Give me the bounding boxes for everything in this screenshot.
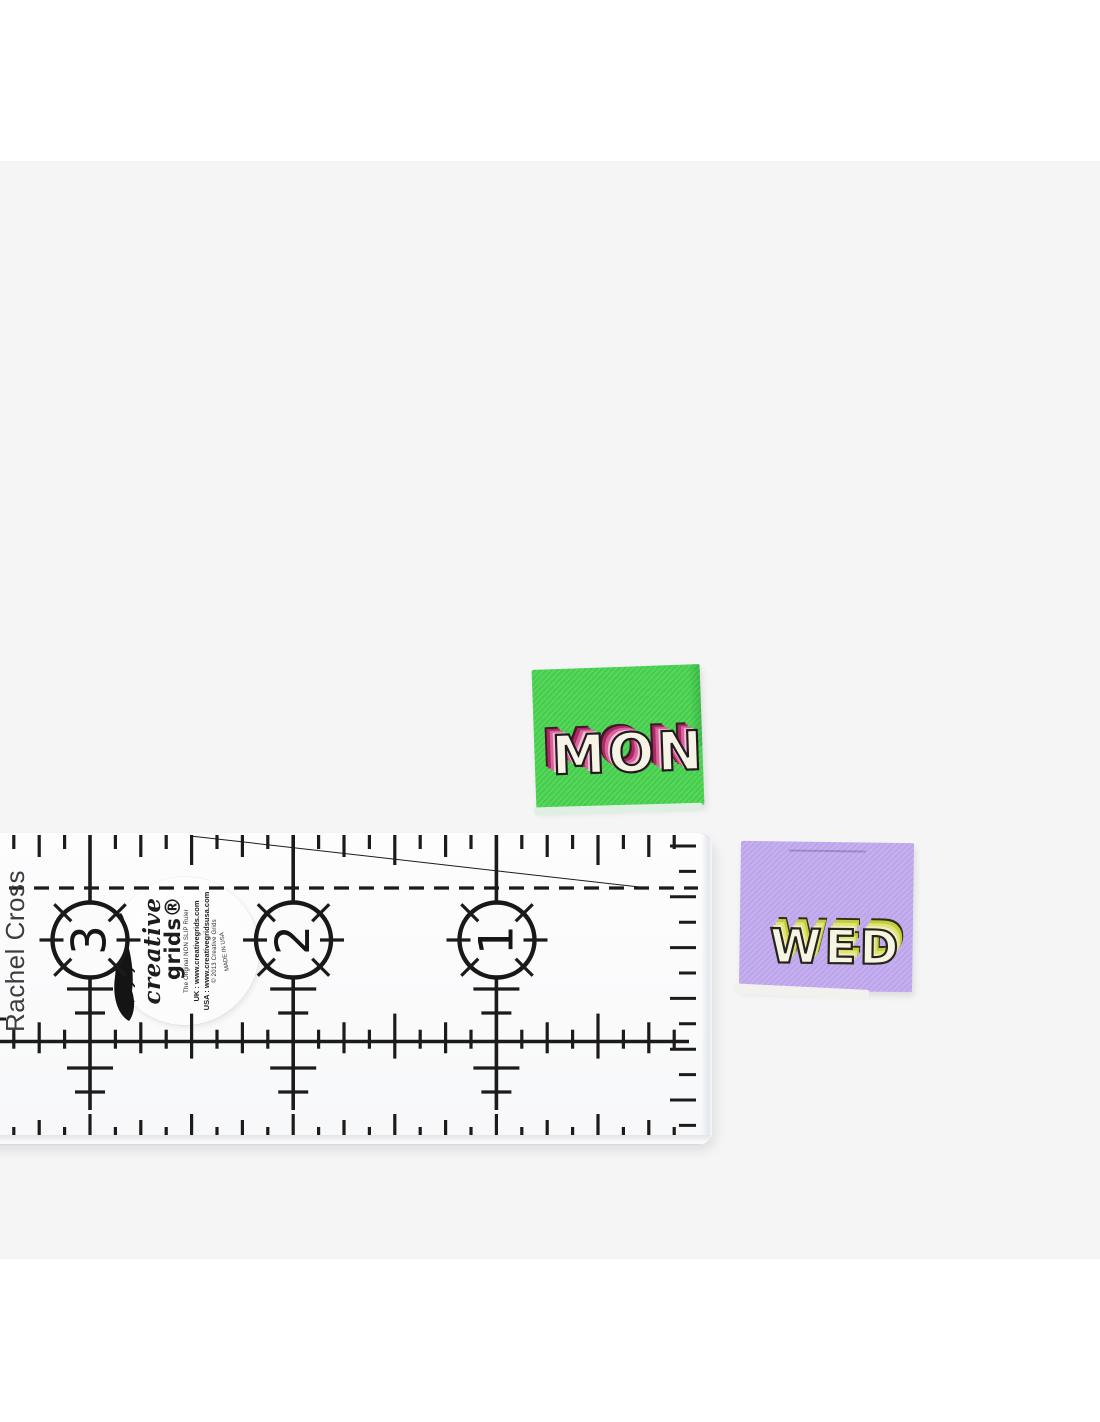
dial-number-3: 3 xyxy=(63,925,118,955)
ruler-marks-generated xyxy=(0,835,698,1142)
photo-area: creative grids® The Original NON SLIP Ru… xyxy=(0,161,1100,1259)
wed-label-text: WED xyxy=(769,923,902,972)
quilting-ruler: creative grids® The Original NON SLIP Ru… xyxy=(0,833,712,1144)
mon-label-text: MON xyxy=(551,724,707,783)
ruler-markings: 3 2 1 xyxy=(0,833,712,1144)
mon-label: MON xyxy=(532,664,705,811)
dial-number-1: 1 xyxy=(470,925,525,955)
dial-number-2: 2 xyxy=(266,925,321,955)
wed-label: WED xyxy=(739,841,914,992)
ruler-side-text: Rachel Cross xyxy=(0,841,28,1061)
product-photo-page: { "page": { "background": "#ffffff", "ph… xyxy=(0,0,1100,1422)
